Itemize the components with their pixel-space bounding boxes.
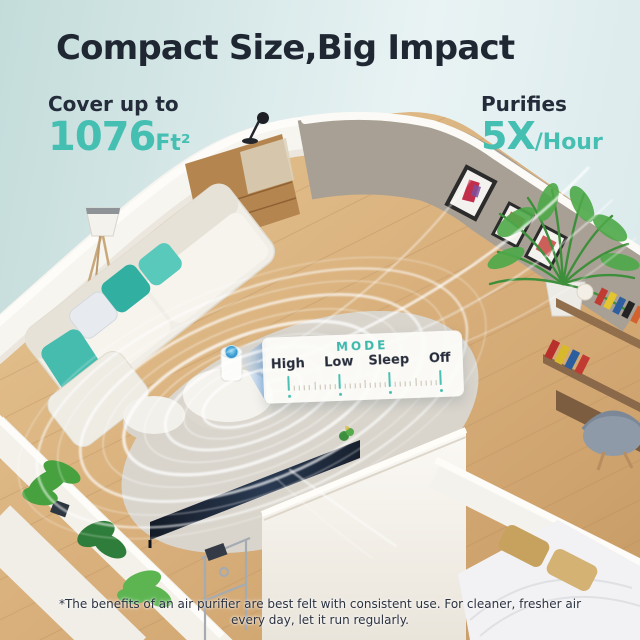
mode-minor-tick [395, 382, 396, 387]
mode-option-low[interactable]: Low [324, 354, 354, 370]
mode-minor-tick [319, 385, 320, 390]
mode-tick-dot [388, 391, 391, 394]
mode-tick-dot [338, 393, 341, 396]
footnote: *The benefits of an air purifier are bes… [0, 596, 640, 628]
mode-minor-tick [370, 383, 371, 388]
mode-major-tick [388, 372, 391, 387]
mode-major-tick [338, 374, 341, 389]
mode-minor-tick [329, 384, 330, 389]
mode-major-tick [439, 370, 442, 385]
coverage-stat: Cover up to 1076 Ft² [48, 92, 191, 157]
mode-minor-tick [375, 383, 376, 388]
mode-tick-dot [439, 389, 442, 392]
mode-minor-tick [415, 378, 416, 386]
mode-option-high[interactable]: High [271, 356, 305, 372]
mode-minor-tick [299, 385, 300, 390]
purify-label: Purifies [481, 92, 603, 116]
mode-minor-tick [335, 384, 336, 389]
mode-minor-tick [364, 380, 365, 388]
mode-minor-tick [350, 383, 351, 388]
mode-option-off[interactable]: Off [429, 351, 451, 367]
mode-minor-tick [360, 383, 361, 388]
mode-option-sleep[interactable]: Sleep [368, 352, 409, 369]
mode-minor-tick [435, 380, 436, 385]
mode-minor-tick [410, 381, 411, 386]
mode-minor-tick [420, 381, 421, 386]
mode-minor-tick [294, 386, 295, 391]
mode-tick-dot [288, 395, 291, 398]
mode-minor-tick [380, 382, 381, 387]
purify-value: 5X [481, 117, 535, 155]
mode-major-tick [287, 376, 290, 391]
mode-minor-tick [304, 385, 305, 390]
purify-stat: Purifies 5X /Hour [481, 92, 603, 155]
footnote-line-2: every day, let it run regularly. [0, 612, 640, 628]
marketing-banner: Compact Size,Big Impact Cover up to 1076… [0, 0, 640, 640]
mode-panel: MODE HighLowSleepOff [262, 330, 464, 404]
mode-minor-tick [400, 382, 401, 387]
mode-minor-tick [385, 382, 386, 387]
mode-minor-tick [324, 384, 325, 389]
coverage-label: Cover up to [48, 92, 191, 116]
mode-minor-tick [314, 382, 315, 390]
mode-minor-tick [355, 383, 356, 388]
mode-minor-tick [425, 381, 426, 386]
mode-minor-tick [309, 385, 310, 390]
headline: Compact Size,Big Impact [56, 28, 514, 68]
mode-minor-tick [430, 380, 431, 385]
mode-minor-tick [345, 384, 346, 389]
coverage-unit: Ft² [155, 133, 190, 155]
purify-unit: /Hour [535, 132, 603, 154]
coverage-value: 1076 [48, 117, 155, 157]
footnote-line-1: *The benefits of an air purifier are bes… [0, 596, 640, 612]
mode-minor-tick [405, 381, 406, 386]
mode-ruler: HighLowSleepOff [263, 350, 465, 402]
ball-lamp [577, 284, 593, 300]
